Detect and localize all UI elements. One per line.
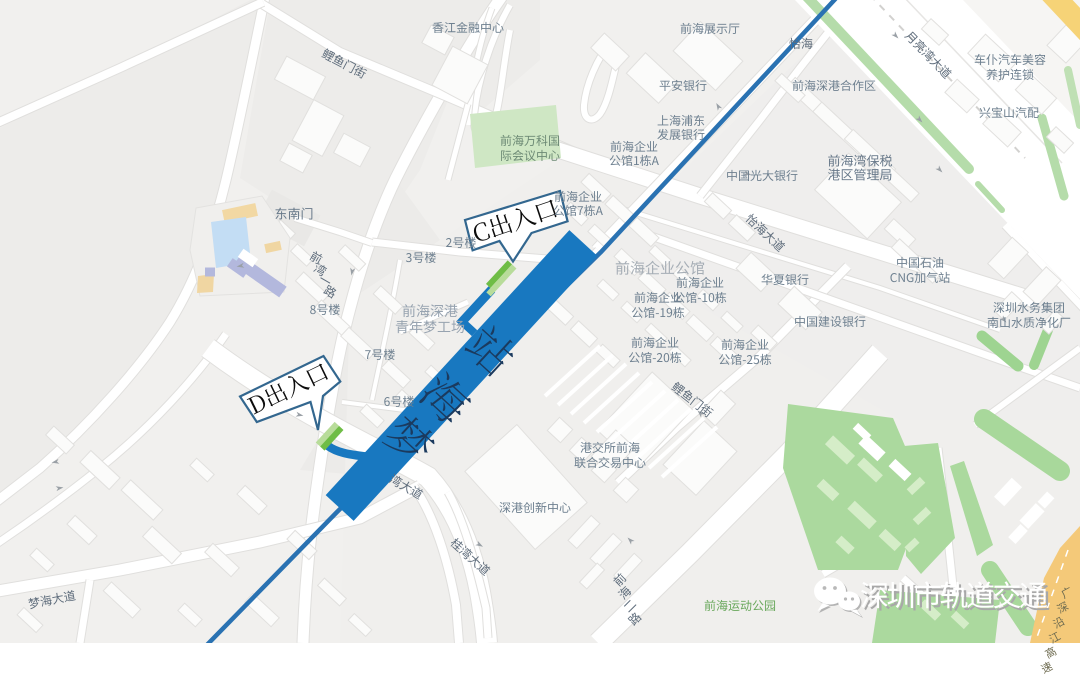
svg-text:深圳市轨道交通: 深圳市轨道交通 bbox=[860, 573, 1048, 615]
